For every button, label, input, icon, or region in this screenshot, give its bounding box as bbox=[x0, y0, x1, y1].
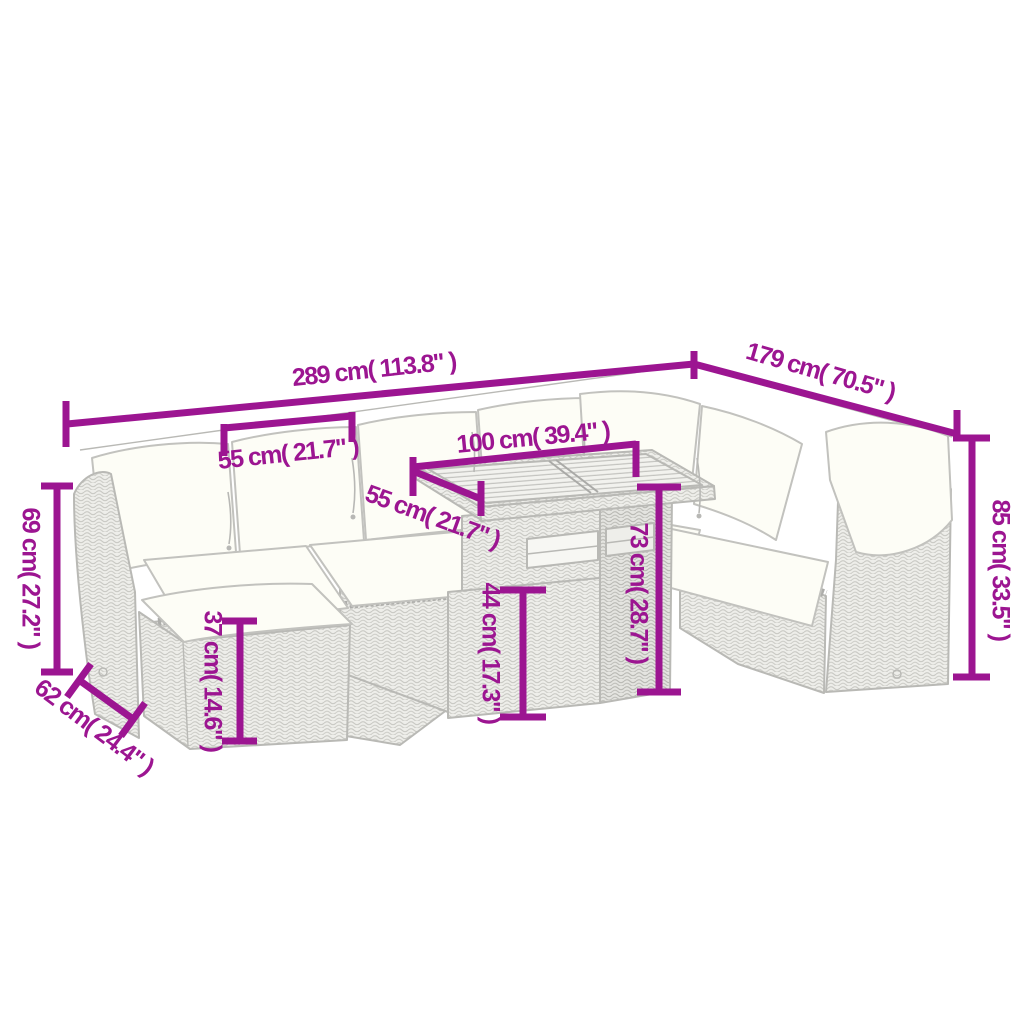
dimension-label: 85 cm( 33.5" ) bbox=[986, 500, 1014, 642]
dimension-label: 289 cm( 113.8" ) bbox=[291, 347, 459, 392]
dimension-label: 73 cm( 28.7" ) bbox=[624, 523, 652, 665]
dimension-label: 44 cm( 17.3" ) bbox=[476, 583, 504, 725]
dim-armrest-height: 69 cm( 27.2" ) bbox=[16, 486, 73, 672]
dimension-label: 37 cm( 14.6" ) bbox=[198, 611, 226, 753]
product-dimension-diagram: 289 cm( 113.8" ) 179 cm( 70.5" ) 55 cm( … bbox=[0, 0, 1024, 1024]
dimension-line bbox=[224, 416, 352, 428]
dimension-label: 69 cm( 27.2" ) bbox=[16, 508, 44, 650]
dim-backrest-height: 85 cm( 33.5" ) bbox=[953, 438, 1014, 677]
diagram-canvas: 289 cm( 113.8" ) 179 cm( 70.5" ) 55 cm( … bbox=[0, 0, 1024, 1024]
cushion-tie-knot bbox=[697, 514, 702, 519]
cushion-tie-knot bbox=[351, 515, 356, 520]
cushion-tie-knot bbox=[227, 546, 232, 551]
back-cushion bbox=[694, 406, 802, 540]
